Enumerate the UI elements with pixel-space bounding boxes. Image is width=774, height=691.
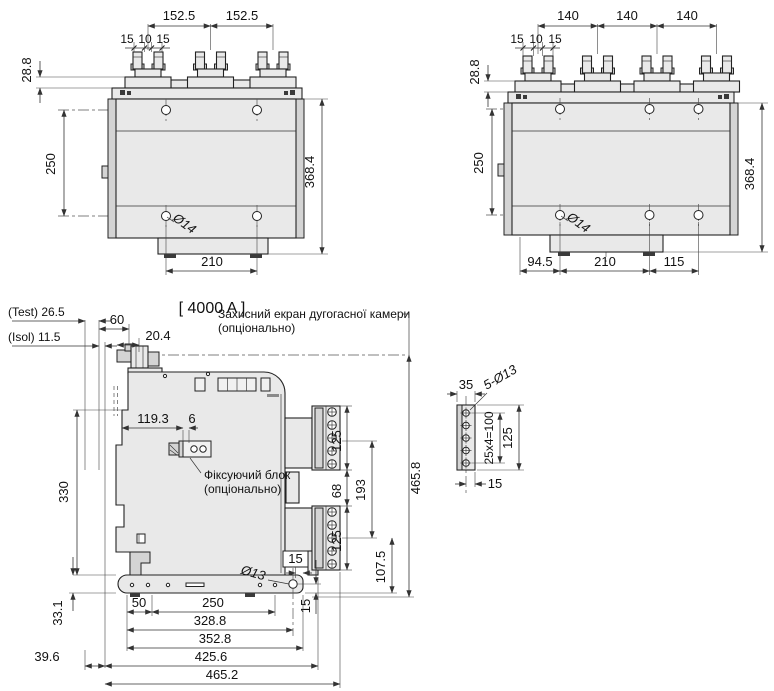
dim-pitch-2: 152.5 [226,8,259,23]
dim-352-8: 352.8 [199,631,232,646]
dim-125: 125 [500,427,515,449]
dim-15-vertical: 15 [298,599,313,613]
dim-pad-1: 15 [120,32,134,46]
drawing-sheet: 152.5 152.5 15 10 15 28.8 250 368.4 Ø14 … [0,0,774,691]
dim-250: 250 [471,152,486,174]
dim-28-8: 28.8 [19,57,34,82]
bottom-tab [550,235,663,252]
dim-pitch-3: 140 [676,8,698,23]
dim-210: 210 [594,254,616,269]
breaker-body [116,99,296,238]
side-latch [102,166,108,178]
side-latch [498,164,504,176]
dim-107-5: 107.5 [373,551,388,584]
front-view-3pole: 152.5 152.5 15 10 15 28.8 250 368.4 Ø14 … [19,8,328,275]
dim-20-4: 20.4 [145,328,170,343]
fixing-block [169,441,211,457]
dim-15-box: 15 [288,551,302,566]
fixing-note-line2: (опціонально) [204,482,281,496]
dim-193: 193 [353,479,368,501]
front-view-4pole: 140 140 140 15 10 15 28.8 250 368.4 Ø14 [467,8,768,275]
dim-368-4: 368.4 [742,158,757,191]
dim-15: 15 [488,476,502,491]
dim-isol: (Isol) 11.5 [8,330,61,344]
left-flange [108,99,116,238]
dim-50: 50 [132,595,146,610]
holes-callout: 5-Ø13 [480,361,519,392]
dim-60: 60 [110,312,124,327]
dim-465-2: 465.2 [206,667,239,682]
dim-pitch-1: 152.5 [163,8,196,23]
fixing-note-line1: Фіксуючий блок [204,468,291,482]
dim-125-top: 125 [329,430,344,452]
dim-115: 115 [664,254,685,269]
base-plate-hole [289,580,297,588]
top-plate [112,88,302,99]
dim-68: 68 [329,484,344,498]
mounting-plate-detail: 35 5-Ø13 25x4=100 125 15 [447,361,524,494]
screen-note-line1: Захисний екран дугогасної камери [218,307,410,321]
dim-39-6: 39.6 [34,649,59,664]
dim-125-bottom: 125 [329,530,344,552]
dim-425-6: 425.6 [195,649,228,664]
dim-28-8: 28.8 [467,59,482,84]
dim-pad-2: 10 [529,32,543,46]
dim-119-3: 119.3 [137,411,169,426]
dim-test: (Test) 26.5 [8,305,65,319]
dim-pad-3: 15 [548,32,562,46]
dim-250: 250 [43,153,58,175]
dim-250: 250 [202,595,224,610]
dim-94-5: 94.5 [527,254,552,269]
dim-210: 210 [201,254,223,269]
dim-328-8: 328.8 [194,613,227,628]
dim-pitch-1: 140 [557,8,579,23]
dim-368-4: 368.4 [302,156,317,189]
dim-pitch-2: 140 [616,8,638,23]
dim-35: 35 [459,377,473,392]
dim-330: 330 [56,481,71,503]
dim-pad-2: 10 [138,32,152,46]
screen-note-line2: (опціонально) [218,321,295,335]
dimension-drawing: 152.5 152.5 15 10 15 28.8 250 368.4 Ø14 … [0,0,774,691]
dim-pad-1: 15 [510,32,524,46]
top-plate [508,92,734,103]
side-view: (Test) 26.5 (Isol) 11.5 60 20.4 Захисний… [8,305,423,688]
dim-465-8: 465.8 [408,462,423,495]
bottom-tab [158,238,268,254]
dim-pad-3: 15 [156,32,170,46]
dim-33-1: 33.1 [50,600,65,625]
dim-25x4: 25x4=100 [482,411,496,464]
dim-6: 6 [188,411,195,426]
